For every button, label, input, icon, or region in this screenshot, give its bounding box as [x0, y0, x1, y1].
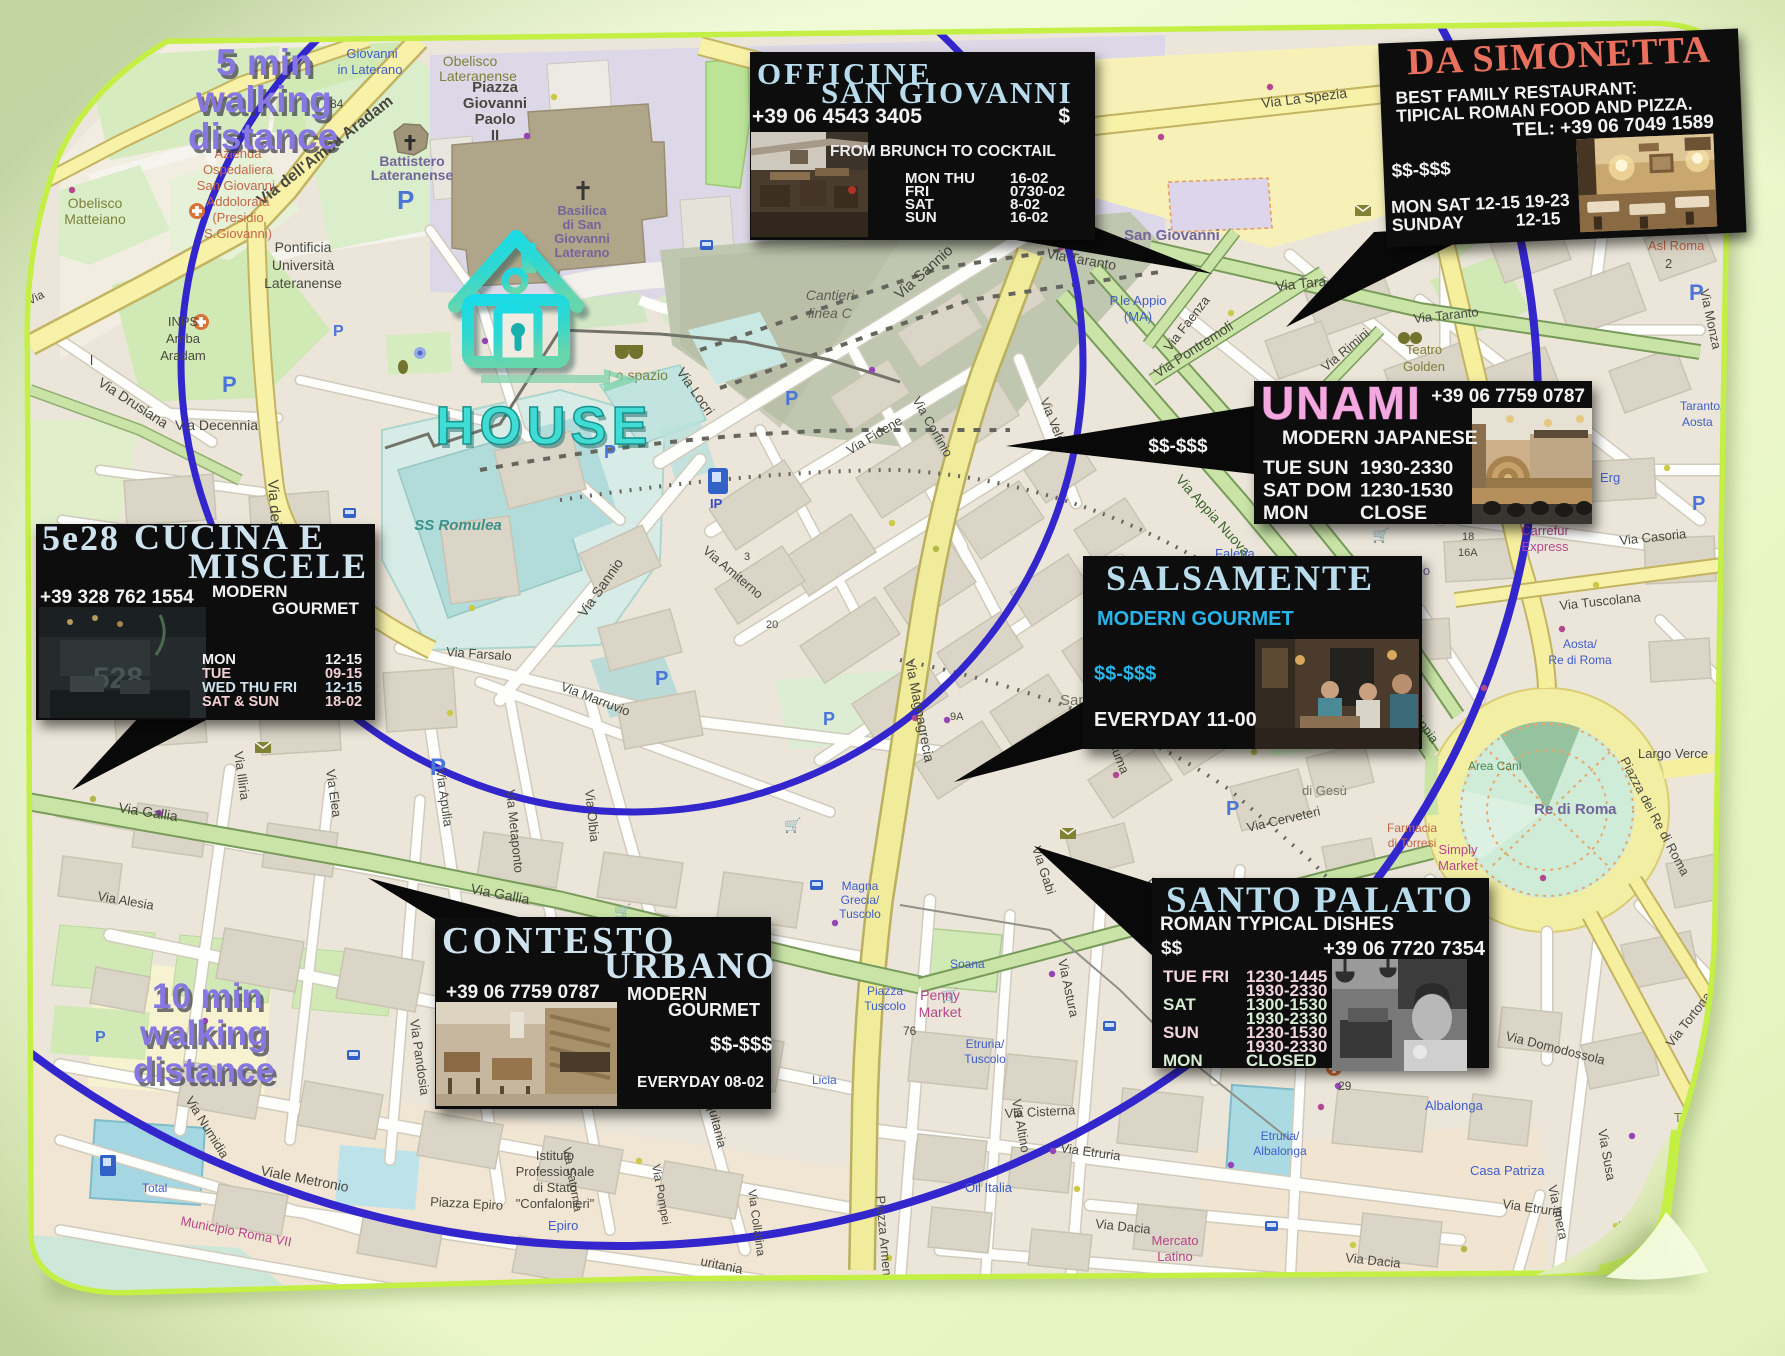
svg-text:UNAMI: UNAMI: [1261, 377, 1422, 429]
svg-text:SUNDAY: SUNDAY: [1391, 212, 1464, 235]
svg-text:$$-$$$: $$-$$$: [710, 1034, 772, 1056]
svg-text:TUE SUN: TUE SUN: [1263, 457, 1349, 479]
svg-text:EVERYDAY 11-00: EVERYDAY 11-00: [1094, 709, 1257, 731]
svg-text:SAT DOM: SAT DOM: [1263, 480, 1351, 502]
svg-text:ROMAN TYPICAL DISHES: ROMAN TYPICAL DISHES: [1160, 914, 1394, 935]
svg-text:+39 328 762 1554: +39 328 762 1554: [40, 587, 194, 608]
svg-text:GOURMET: GOURMET: [668, 1000, 760, 1020]
svg-text:$$-$$$: $$-$$$: [1094, 663, 1156, 685]
svg-text:+39 06 7759 0787: +39 06 7759 0787: [446, 982, 600, 1003]
svg-text:CLOSE: CLOSE: [1360, 502, 1427, 524]
svg-text:TUE FRI: TUE FRI: [1163, 967, 1229, 986]
svg-text:HOUSE: HOUSE: [435, 396, 652, 456]
svg-text:FROM BRUNCH TO COCKTAIL: FROM BRUNCH TO COCKTAIL: [830, 143, 1056, 160]
svg-text:12-15: 12-15: [1515, 208, 1561, 230]
svg-text:MISCELE: MISCELE: [188, 546, 368, 586]
svg-text:distance: distance: [188, 116, 338, 157]
svg-text:+39 06 7720 7354: +39 06 7720 7354: [1323, 938, 1486, 960]
svg-text:SUN: SUN: [1163, 1023, 1199, 1042]
svg-text:10 min: 10 min: [152, 977, 263, 1016]
svg-text:SAT: SAT: [1163, 995, 1196, 1014]
svg-text:SAT & SUN: SAT & SUN: [202, 694, 279, 710]
svg-text:URBANO: URBANO: [604, 946, 776, 987]
svg-text:5e28: 5e28: [42, 518, 120, 558]
svg-text:MON: MON: [1163, 1051, 1203, 1070]
svg-text:+39 06 4543 3405: +39 06 4543 3405: [752, 105, 922, 128]
svg-text:SALSAMENTE: SALSAMENTE: [1106, 558, 1374, 598]
svg-text:1230-1530: 1230-1530: [1360, 480, 1453, 502]
svg-text:1930-2330: 1930-2330: [1360, 457, 1453, 479]
svg-text:distance: distance: [133, 1051, 275, 1090]
svg-text:walking: walking: [195, 79, 332, 120]
svg-text:MODERN JAPANESE: MODERN JAPANESE: [1282, 427, 1478, 449]
svg-text:18-02: 18-02: [325, 694, 362, 710]
svg-text:MON: MON: [1263, 502, 1309, 524]
svg-text:$$: $$: [1161, 938, 1183, 959]
svg-text:walking: walking: [139, 1014, 268, 1053]
svg-text:5 min: 5 min: [216, 42, 313, 83]
svg-text:$$-$$$: $$-$$$: [1391, 159, 1451, 182]
svg-text:MODERN GOURMET: MODERN GOURMET: [1097, 608, 1294, 630]
svg-text:CLOSED: CLOSED: [1246, 1051, 1317, 1070]
svg-text:GOURMET: GOURMET: [272, 599, 360, 618]
svg-text:EVERYDAY 08-02: EVERYDAY 08-02: [637, 1074, 764, 1091]
svg-text:+39 06 7759 0787: +39 06 7759 0787: [1431, 386, 1585, 407]
svg-text:$: $: [1058, 105, 1070, 128]
svg-text:16-02: 16-02: [1010, 209, 1048, 226]
svg-text:$$-$$$: $$-$$$: [1148, 436, 1208, 457]
svg-text:SUN: SUN: [905, 209, 937, 226]
